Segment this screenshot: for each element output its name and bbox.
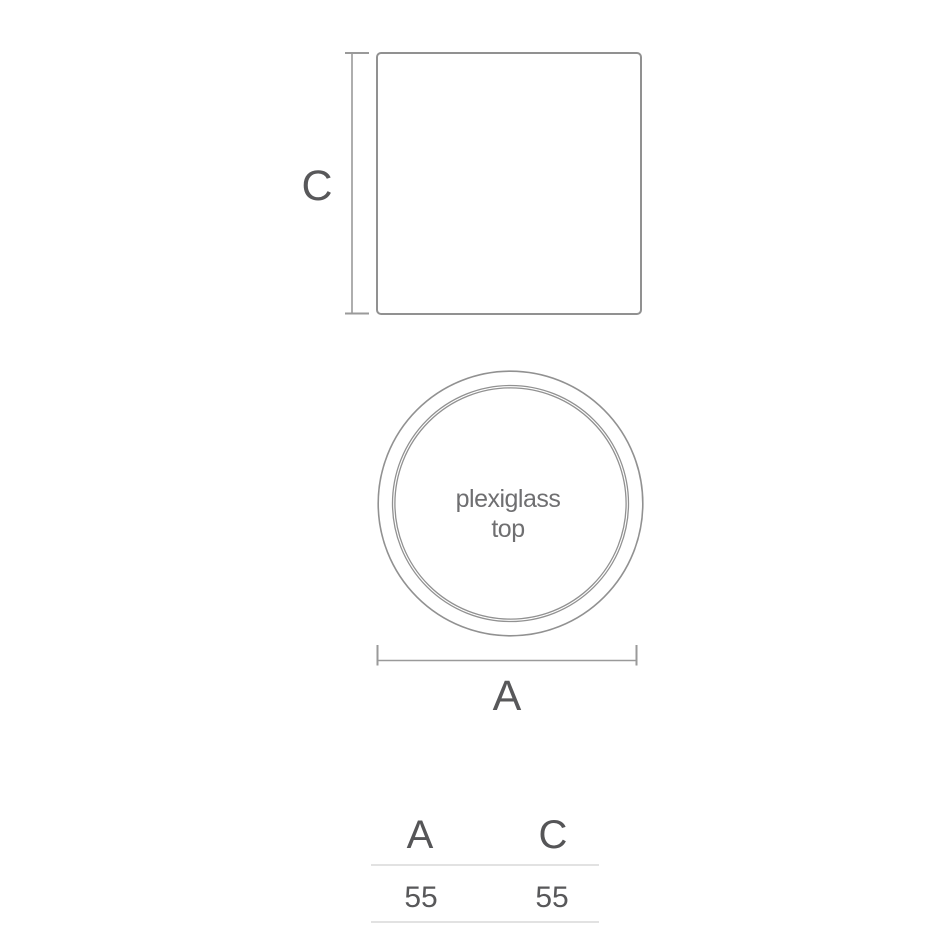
c-dimension-label: C <box>301 162 332 210</box>
plexiglass-label-line1: plexiglass <box>456 485 561 513</box>
table-header-c: C <box>539 813 568 857</box>
table-header-a: A <box>407 813 434 857</box>
plexiglass-label-line2: top <box>491 515 524 543</box>
side-view-outline <box>377 53 641 314</box>
diagram-canvas: C plexiglass top A A C 55 55 <box>0 0 950 950</box>
dimension-drawing: C plexiglass top A A C 55 55 <box>0 0 950 950</box>
table-value-c: 55 <box>535 881 568 914</box>
table-value-a: 55 <box>404 881 437 914</box>
a-dimension-label: A <box>493 672 522 720</box>
